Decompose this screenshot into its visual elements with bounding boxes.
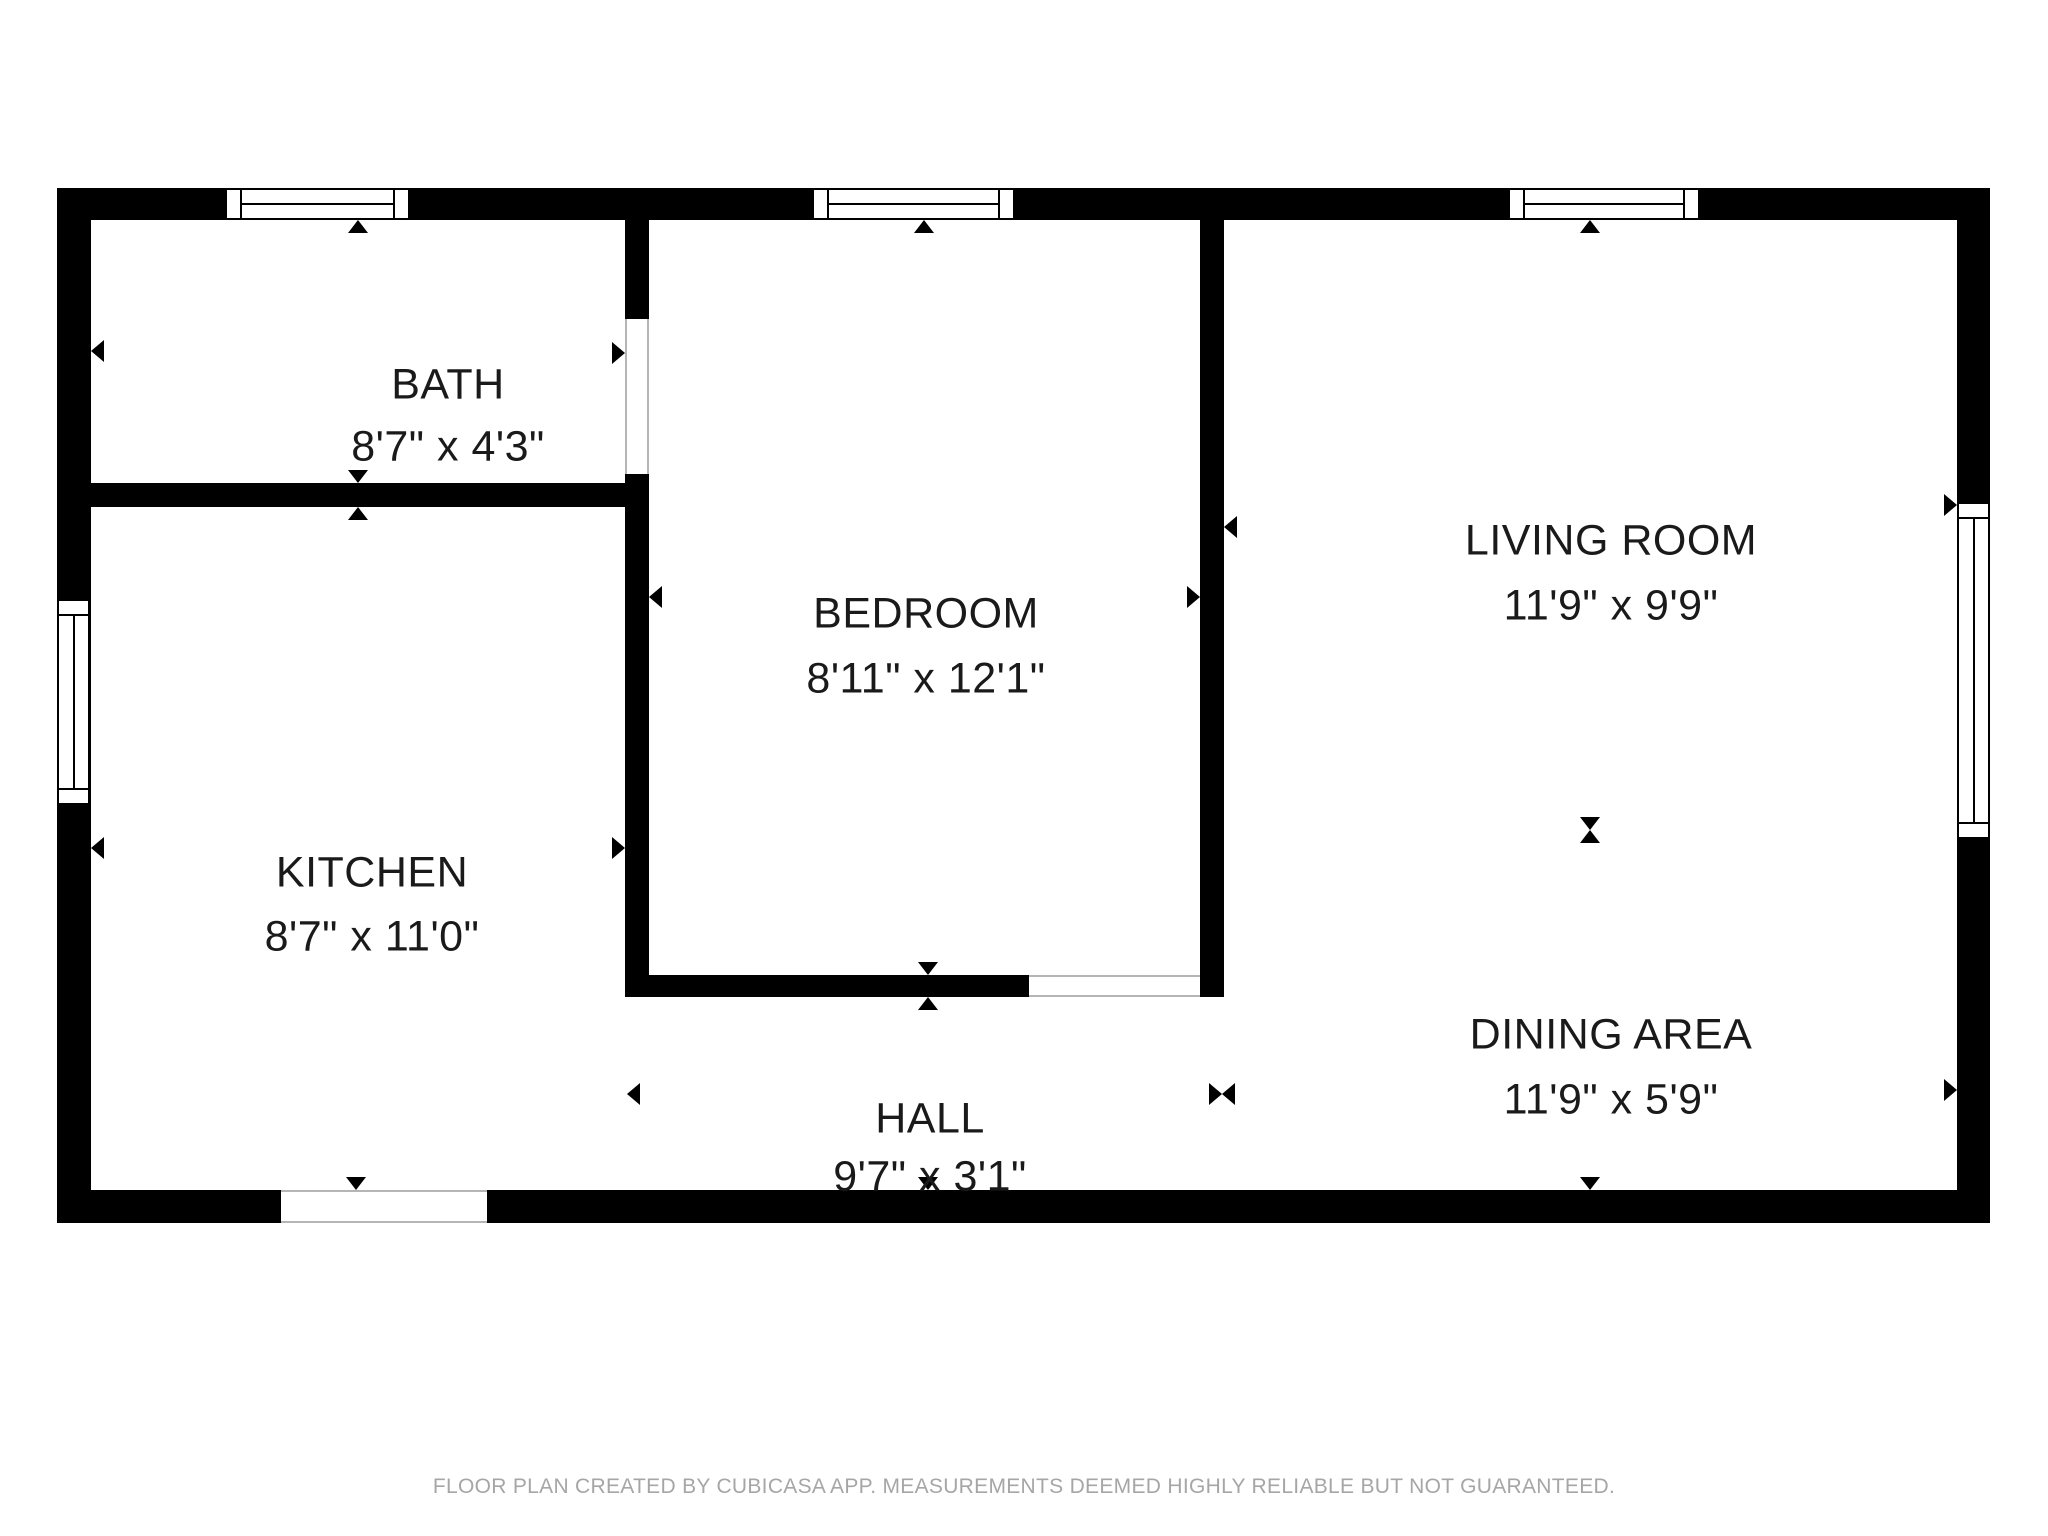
room-name-kitchen: KITCHEN	[276, 852, 468, 895]
room-dims-dining: 11'9" x 5'9"	[1504, 1079, 1719, 1122]
marker-living-top-icon	[1580, 220, 1600, 233]
marker-dining-right-icon	[1944, 1079, 1957, 1101]
room-name-bedroom: BEDROOM	[813, 593, 1039, 636]
room-name-living: LIVING ROOM	[1465, 520, 1757, 563]
marker-bath-right-icon	[612, 342, 625, 364]
marker-dining-left-icon	[1222, 1083, 1235, 1105]
marker-dining-bottom-icon	[1580, 1177, 1600, 1190]
wall-exterior-bottom-right	[487, 1190, 1990, 1223]
room-dims-bath: 8'7" x 4'3"	[351, 426, 545, 469]
window-living-right	[1957, 502, 1990, 839]
window-bath	[225, 188, 410, 220]
marker-dining-top-icon	[1580, 830, 1600, 843]
room-dims-hall: 9'7" x 3'1"	[833, 1156, 1027, 1199]
window-kitchen	[57, 599, 90, 805]
room-dims-bedroom: 8'11" x 12'1"	[806, 658, 1045, 701]
room-name-dining: DINING AREA	[1470, 1014, 1753, 1057]
marker-bedroom-left-icon	[649, 586, 662, 608]
marker-kitchen-bottom-icon	[346, 1177, 366, 1190]
marker-bath-top-icon	[348, 220, 368, 233]
marker-hall-top-icon	[918, 997, 938, 1010]
marker-bath-left-icon	[91, 340, 104, 362]
marker-living-bottom-icon	[1580, 817, 1600, 830]
marker-bedroom-right-icon	[1187, 586, 1200, 608]
marker-bath-bottom-icon	[348, 470, 368, 483]
marker-kitchen-top-icon	[348, 507, 368, 520]
marker-hall-right-icon	[1209, 1083, 1222, 1105]
wall-bath-kitchen	[91, 483, 649, 507]
footer-disclaimer: FLOOR PLAN CREATED BY CUBICASA APP. MEAS…	[433, 1475, 1615, 1499]
room-name-bath: BATH	[391, 364, 505, 407]
window-bedroom	[812, 188, 1015, 220]
room-name-hall: HALL	[875, 1098, 985, 1141]
marker-living-right-icon	[1944, 494, 1957, 516]
door-opening-entry	[281, 1190, 487, 1223]
wall-exterior-bottom-left	[57, 1190, 281, 1223]
marker-kitchen-left-icon	[91, 837, 104, 859]
marker-bedroom-top-icon	[914, 220, 934, 233]
door-opening-bedroom	[1029, 975, 1200, 997]
door-opening-bath	[625, 319, 649, 474]
marker-bedroom-bottom-icon	[918, 962, 938, 975]
room-dims-kitchen: 8'7" x 11'0"	[265, 916, 480, 959]
floor-plan: BATH 8'7" x 4'3" KITCHEN 8'7" x 11'0" BE…	[0, 0, 2048, 1536]
window-living-top	[1508, 188, 1700, 220]
marker-kitchen-right-icon	[612, 837, 625, 859]
marker-living-left-icon	[1224, 516, 1237, 538]
marker-hall-left-icon	[627, 1083, 640, 1105]
wall-bedroom-living	[1200, 220, 1224, 997]
room-dims-living: 11'9" x 9'9"	[1504, 585, 1719, 628]
